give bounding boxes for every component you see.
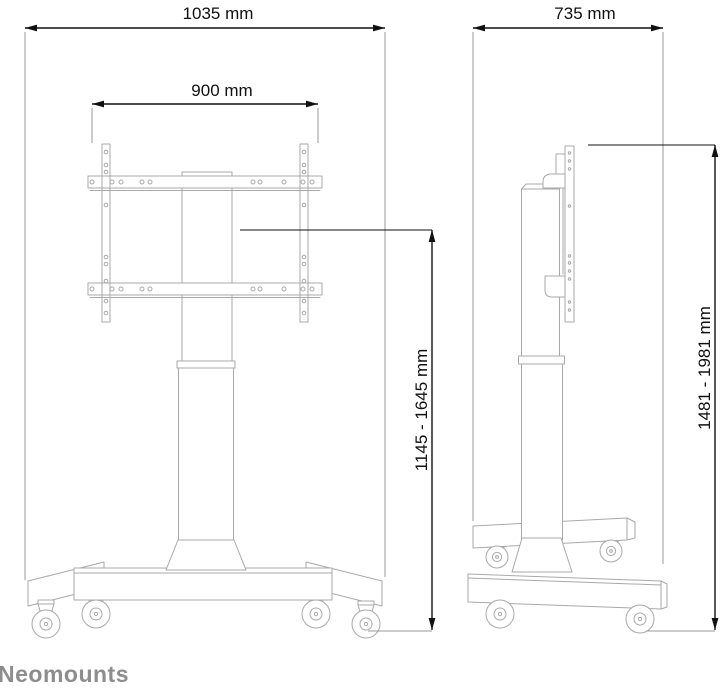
- side-bracket-assembly: [522, 146, 575, 357]
- front-casters: [32, 600, 380, 638]
- caster-wheel: [486, 546, 508, 568]
- front-vesa-crossbars: [88, 176, 322, 298]
- front-inner-column: [182, 172, 232, 361]
- dim-label-vesa-width: 900 mm: [147, 81, 297, 101]
- dim-label-screen-center-height: 1145 - 1645 mm: [413, 340, 431, 480]
- dim-label-total-height: 1481 - 1981 mm: [696, 298, 714, 438]
- caster-wheel: [486, 600, 514, 628]
- crossbar-holes: [90, 180, 314, 291]
- caster-wheel: [32, 600, 60, 638]
- side-view-drawing: [468, 146, 667, 633]
- side-column-foot: [512, 538, 572, 572]
- caster-wheel: [600, 540, 622, 562]
- front-view-drawing: [28, 144, 382, 638]
- side-top-hook: [543, 174, 565, 188]
- side-column-body: [522, 189, 560, 357]
- technical-drawing-page: 1035 mm 900 mm 735 mm 1145 - 1645 mm 148…: [0, 0, 720, 690]
- side-vesa-plate: [565, 146, 574, 322]
- side-bottom-hook: [545, 276, 565, 297]
- dim-label-overall-width: 1035 mm: [133, 4, 303, 24]
- side-outer-column: [512, 356, 572, 572]
- front-outer-column: [177, 361, 235, 542]
- front-base: [28, 540, 382, 606]
- side-top-tab: [556, 154, 565, 176]
- caster-wheel: [82, 600, 110, 628]
- brand-logo-text: Neomounts: [0, 661, 129, 688]
- caster-wheel: [302, 600, 330, 628]
- caster-wheel: [626, 605, 654, 633]
- line-art-canvas: [0, 0, 720, 690]
- caster-wheel: [352, 601, 380, 638]
- dim-label-depth: 735 mm: [505, 4, 665, 24]
- front-column-foot: [166, 540, 246, 570]
